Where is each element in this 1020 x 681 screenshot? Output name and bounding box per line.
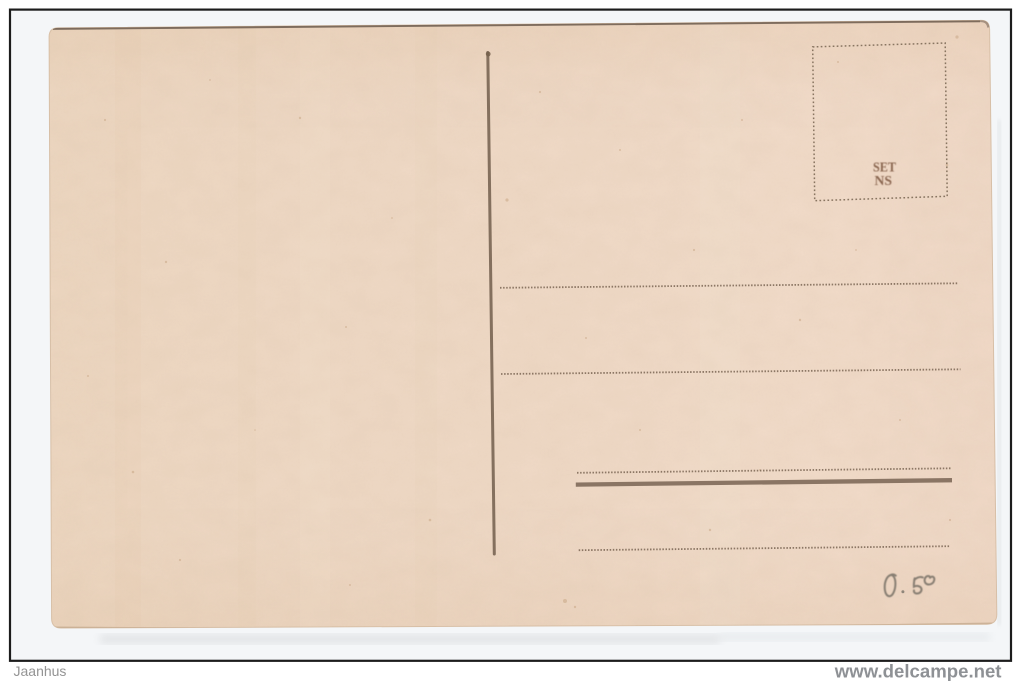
svg-text:www.delcampe.net: www.delcampe.net [834, 661, 1002, 681]
svg-text:Jaanhus: Jaanhus [14, 663, 67, 679]
svg-text:NS: NS [874, 174, 892, 189]
